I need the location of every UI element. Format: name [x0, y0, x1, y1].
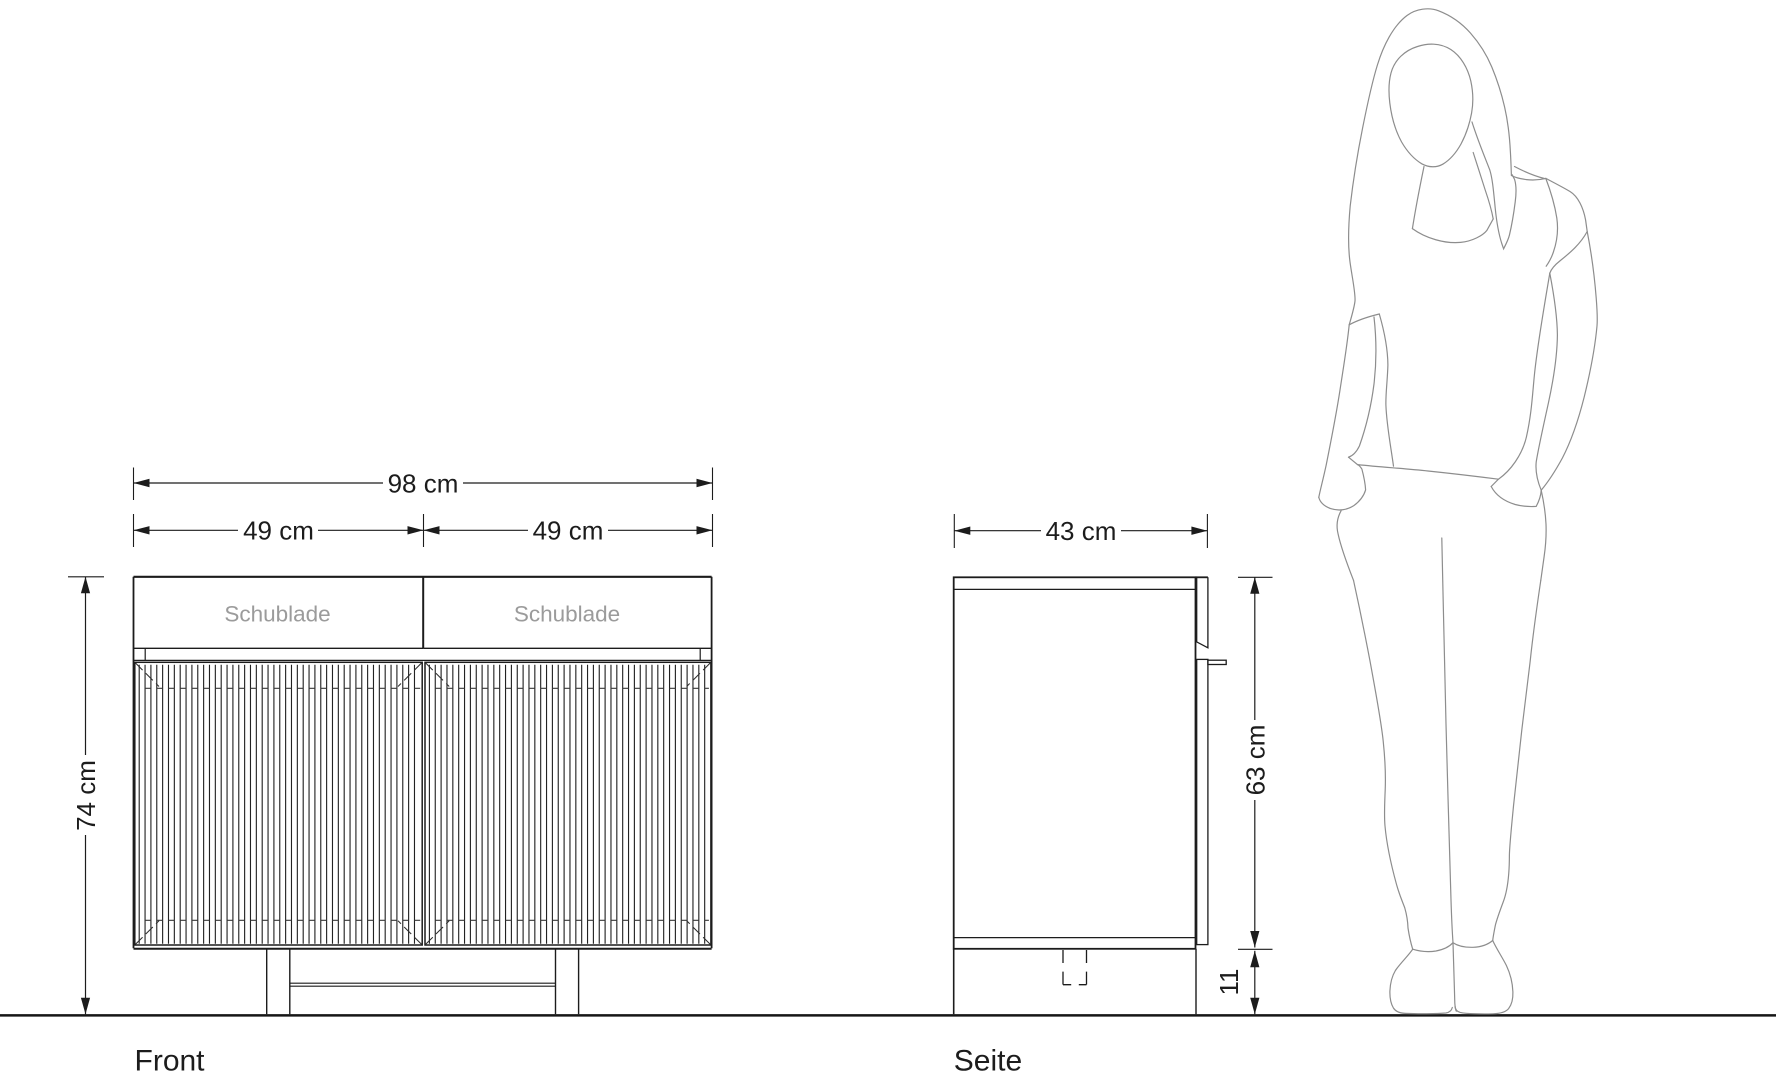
svg-text:Schublade: Schublade	[224, 601, 330, 626]
svg-text:98 cm: 98 cm	[388, 468, 459, 498]
svg-text:49 cm: 49 cm	[533, 516, 604, 546]
svg-text:11: 11	[1214, 969, 1244, 996]
svg-text:49 cm: 49 cm	[243, 516, 314, 546]
svg-text:74 cm: 74 cm	[71, 760, 101, 831]
svg-text:Schublade: Schublade	[514, 601, 620, 626]
svg-text:Front: Front	[135, 1045, 206, 1076]
svg-text:63 cm: 63 cm	[1240, 725, 1270, 796]
svg-text:43 cm: 43 cm	[1046, 516, 1117, 546]
svg-text:Seite: Seite	[954, 1045, 1022, 1076]
